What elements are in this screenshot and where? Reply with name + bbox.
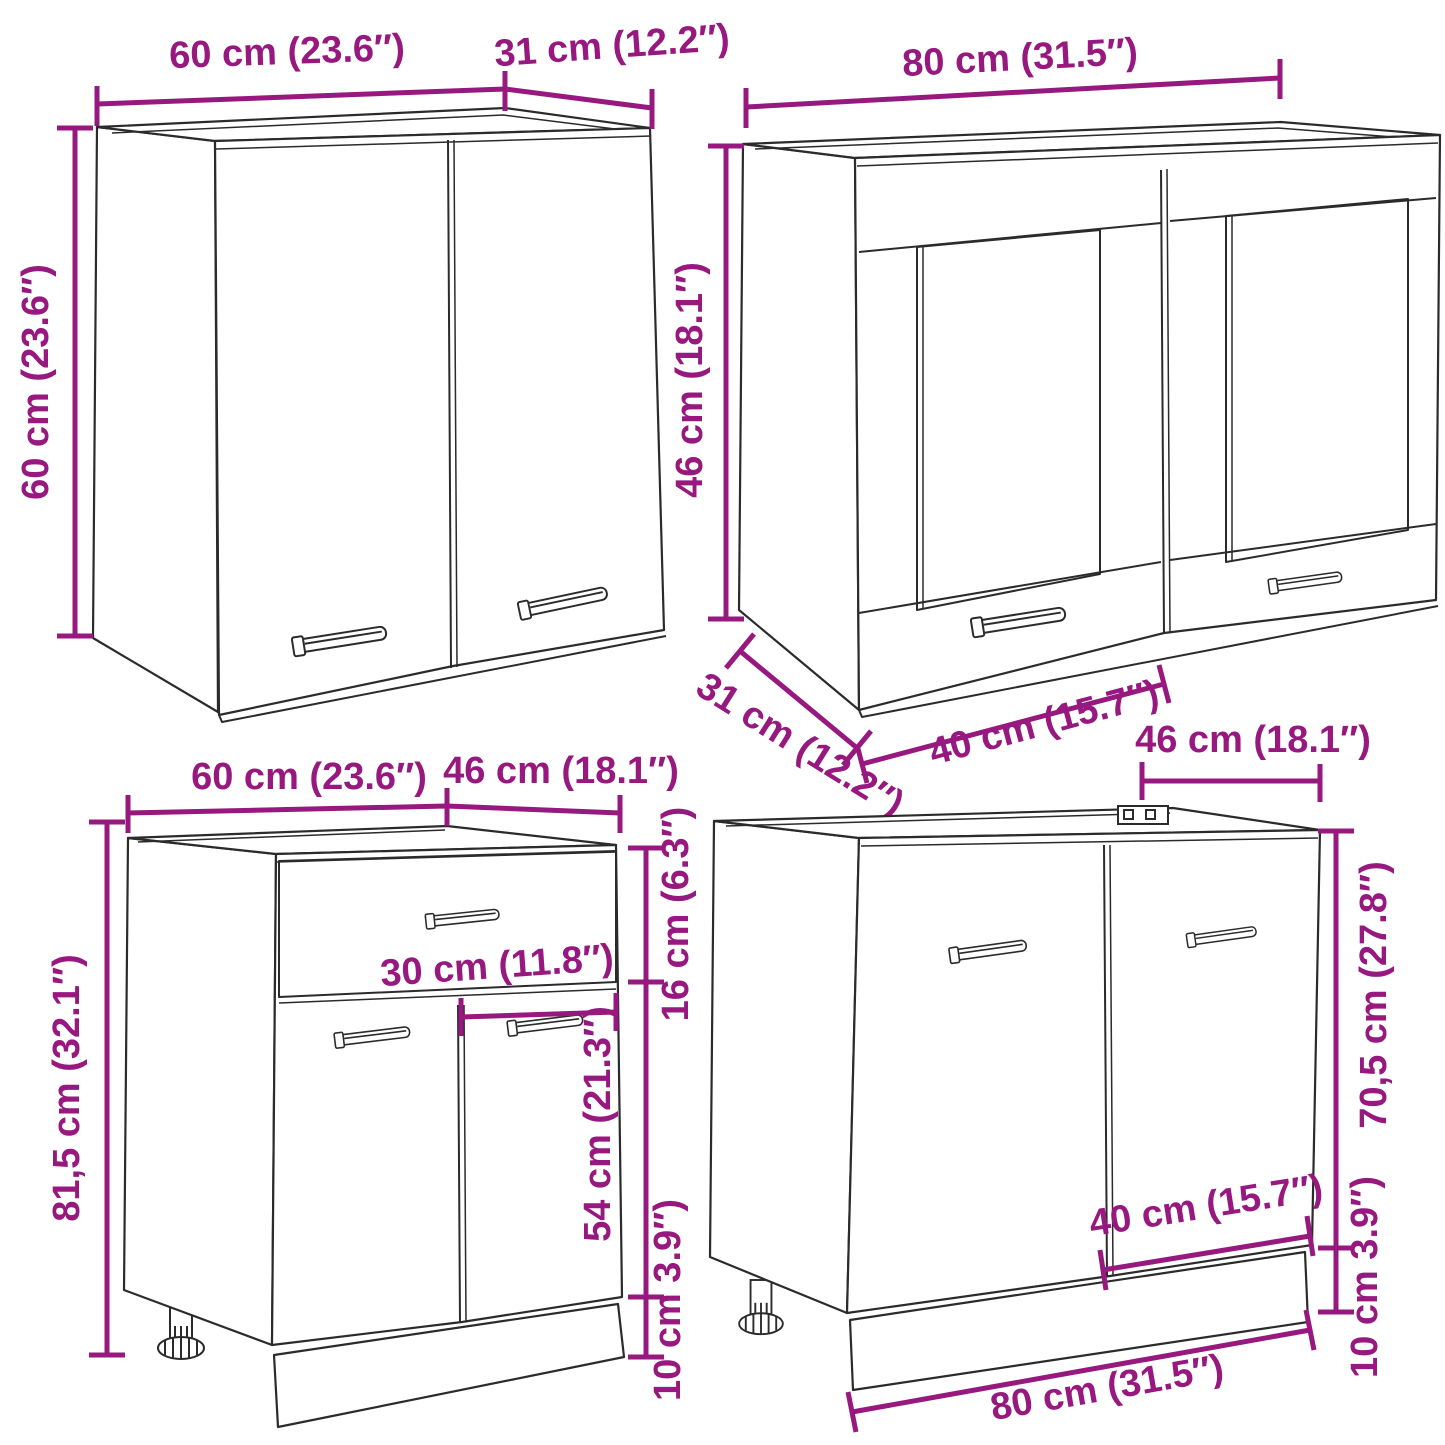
height-label: 60 cm (23.6″) — [15, 264, 57, 500]
width-dimension-line — [97, 89, 505, 104]
width-label: 60 cm (23.6″) — [168, 27, 405, 77]
cabinet-body — [739, 122, 1440, 717]
diagram-canvas: 60 cm (23.6″) 31 cm (12.2″) 60 cm (23.6″… — [0, 0, 1445, 1445]
depth-label: 31 cm (12.2″) — [493, 17, 731, 75]
plinth-height-label: 10 cm 3.9″) — [1344, 1176, 1386, 1378]
front-face — [847, 830, 1320, 1313]
width-label: 60 cm (23.6″) — [191, 756, 427, 798]
height-label: 70,5 cm (27.8″) — [1353, 861, 1395, 1128]
depth-label: 46 cm (18.1″) — [1135, 719, 1371, 761]
side-panel — [124, 838, 276, 1345]
wall-glass-cabinet-drawing: 80 cm (31.5″) 46 cm (18.1″) 31 cm (12.2″… — [669, 31, 1440, 825]
drawer-height-label: 16 cm (6.3″) — [655, 807, 697, 1022]
door-width-label: 40 cm (15.7″) — [925, 672, 1164, 774]
width-label: 80 cm (31.5″) — [901, 31, 1139, 85]
depth-label: 46 cm (18.1″) — [443, 750, 679, 792]
side-panel — [739, 144, 859, 710]
cabinet-dimension-diagram: 60 cm (23.6″) 31 cm (12.2″) 60 cm (23.6″… — [0, 0, 1445, 1445]
height-label: 81,5 cm (32.1″) — [46, 954, 88, 1221]
sink-mounting-bracket — [1118, 806, 1168, 824]
cabinet-body — [93, 108, 666, 722]
wall-cabinet-2-doors-drawing: 60 cm (23.6″) 31 cm (12.2″) 60 cm (23.6″… — [15, 17, 731, 722]
depth-dimension-line — [505, 89, 652, 108]
adjustable-leg — [739, 1280, 783, 1334]
side-panel — [93, 127, 218, 712]
plinth-height-label: 10 cm 3.9″) — [647, 1199, 689, 1401]
width-depth-dimension-line — [128, 806, 620, 813]
door-height-label: 54 cm (21.3″) — [577, 1006, 619, 1242]
sink-base-cabinet-drawing: 46 cm (18.1″) 70,5 cm (27.8″) 10 cm 3.9″… — [710, 719, 1395, 1432]
cabinet-body — [710, 806, 1320, 1390]
side-panel — [710, 821, 859, 1313]
width-dimension-line — [746, 78, 1280, 107]
height-label: 46 cm (18.1″) — [669, 262, 711, 498]
tick — [726, 634, 754, 668]
base-cabinet-drawer-drawing: 60 cm (23.6″) 46 cm (18.1″) 81,5 cm (32.… — [46, 750, 697, 1427]
cabinet-body — [124, 826, 624, 1427]
front-face — [215, 128, 664, 715]
front-face — [855, 135, 1440, 710]
